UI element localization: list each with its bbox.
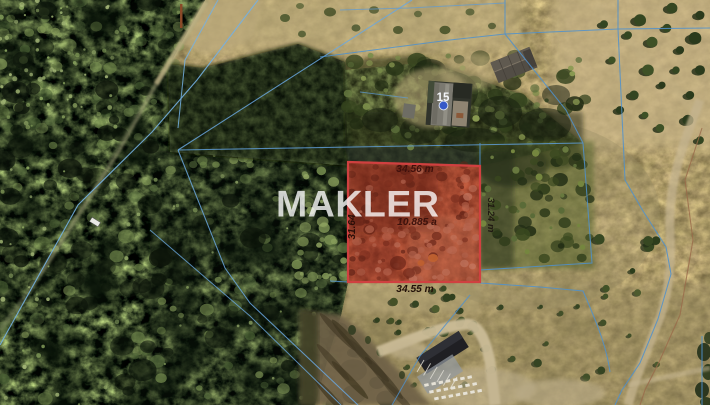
svg-text:10.885 a: 10.885 a xyxy=(397,217,437,228)
svg-text:31.64: 31.64 xyxy=(347,214,358,239)
svg-text:34.56 m: 34.56 m xyxy=(396,164,433,175)
svg-text:34.55 m: 34.55 m xyxy=(396,284,433,295)
svg-text:31.24 m: 31.24 m xyxy=(485,198,496,233)
